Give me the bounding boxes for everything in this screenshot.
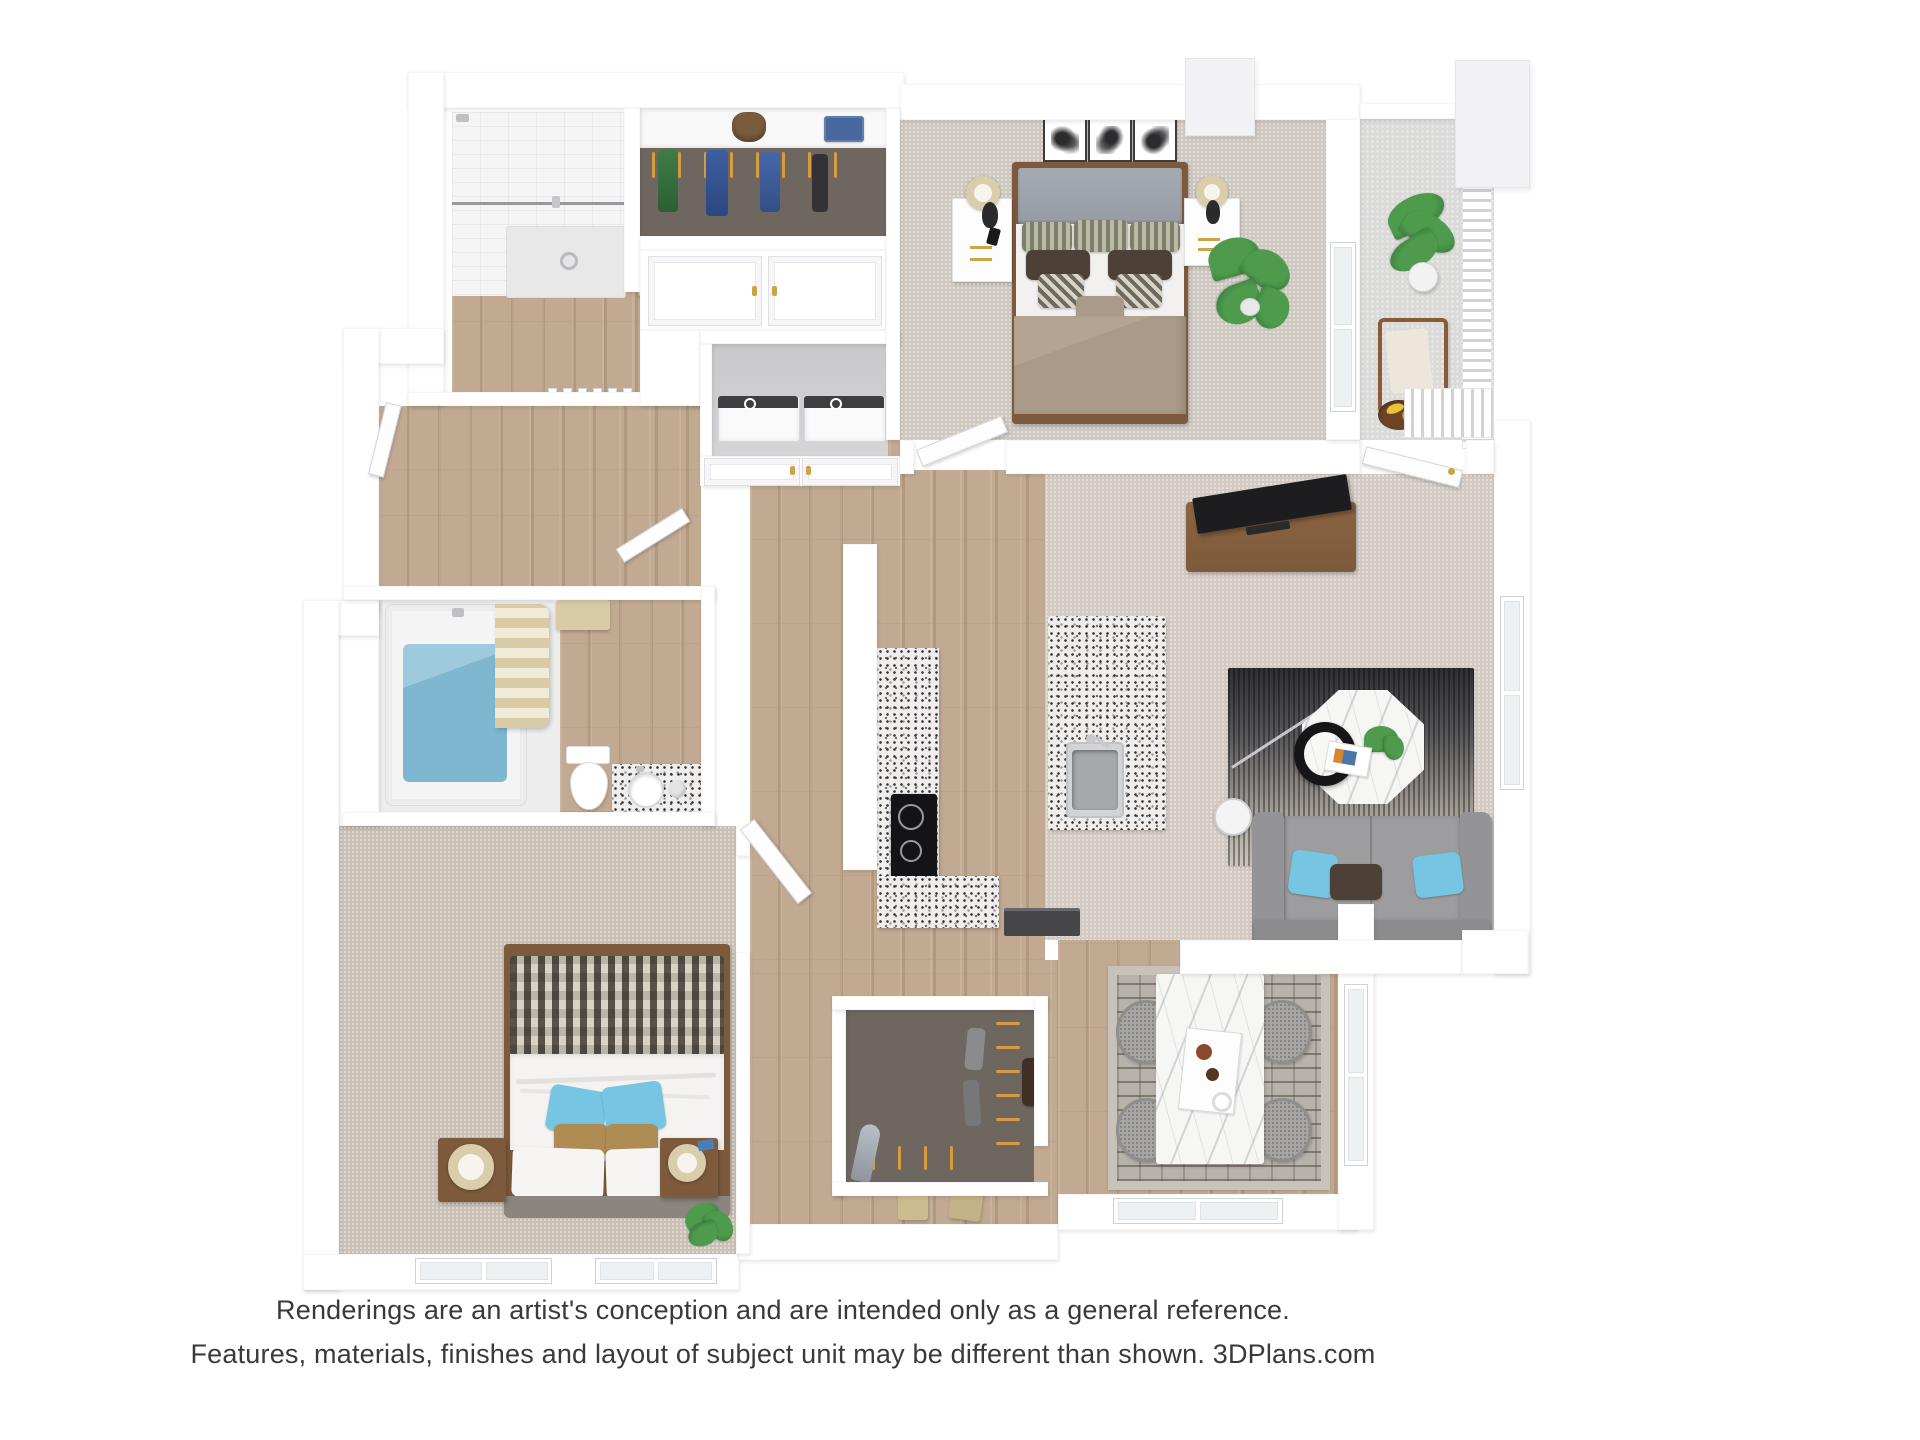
wall-master-west (886, 108, 900, 440)
closet2-hanger-4 (996, 1094, 1020, 1097)
closet1-door-panel-2 (768, 256, 882, 326)
shower1-drain-icon (560, 252, 578, 270)
wall-bath1-closet1-divider (624, 108, 640, 292)
master-foot-rail (1014, 414, 1186, 424)
patio-door-frame (1462, 930, 1528, 974)
window-living-east-pane-2 (1504, 695, 1520, 785)
island-sink-basin (1072, 750, 1118, 810)
bedroom2-lamp-left-icon (448, 1144, 494, 1190)
closet1-door-handle-2 (772, 286, 777, 296)
sofa-pillow-blue-right (1412, 851, 1465, 899)
monstera-pot (1240, 298, 1260, 316)
dining-cup-icon (1212, 1092, 1232, 1112)
dining-fruit-1 (1196, 1044, 1212, 1060)
nightstand-right-handle-1 (1198, 238, 1220, 241)
master-pillow-olive-2 (1074, 220, 1128, 252)
balcony-chair-seat (1385, 328, 1433, 394)
wall-closet2-north (832, 996, 1048, 1010)
wall-living-north-3 (1466, 440, 1494, 474)
hanging-garment-blue-2 (760, 152, 780, 212)
window-dining-south-pane-2 (1200, 1202, 1278, 1220)
bedroom2-duvet-chevron (510, 956, 724, 1054)
bathtub-water (403, 644, 507, 782)
hanger-rod-5 (756, 152, 759, 178)
closet2-clothes-gray-2 (962, 1079, 981, 1126)
entry-door-handle-icon (1448, 468, 1455, 475)
washer-control-panel (718, 396, 798, 408)
wall-art-frame-2 (1088, 118, 1132, 162)
window-bedroom2-south-1 (415, 1258, 552, 1284)
wall-closet2-south (832, 1182, 1048, 1196)
hanging-garment-blue-1 (706, 150, 728, 216)
window-master-east (1330, 242, 1356, 412)
laundry-door-panel-1 (704, 458, 800, 486)
wall-art-1 (1051, 126, 1079, 154)
master-headboard (1018, 168, 1182, 224)
window-dining-east-pane-2 (1348, 1077, 1364, 1161)
wall-closet2-east (1034, 996, 1048, 1146)
wall-bath2-east (701, 586, 715, 826)
laundry-door-handle-1 (790, 466, 795, 475)
floor-plan-3d (0, 0, 1920, 1440)
window-dining-east-pane-1 (1348, 989, 1364, 1073)
master-lamp-right-vase-icon (1206, 200, 1220, 224)
closet2-hanger-8 (898, 1146, 901, 1170)
hanger-rod-7 (808, 152, 811, 178)
hanging-garment-green (658, 150, 678, 212)
exterior-column-1 (1185, 58, 1255, 136)
closet2-hanger-3 (996, 1070, 1020, 1073)
wall-bath2-north (343, 586, 715, 600)
laundry-door-handle-2 (806, 466, 811, 475)
kitchen-counter-bottom (877, 876, 999, 928)
nightstand-left-handle-1 (970, 246, 992, 249)
cooktop-burner-2-icon (900, 840, 922, 862)
closet2-hanger-5 (996, 1118, 1020, 1121)
closet2-hanger-6 (996, 1142, 1020, 1145)
shower2-head-icon (452, 608, 464, 617)
wall-north-master (900, 84, 1360, 120)
wall-south-entry (739, 1224, 1058, 1260)
window-bedroom2-south-1-pane-1 (420, 1262, 482, 1280)
window-living-east (1500, 596, 1524, 790)
wall-art-2 (1096, 126, 1124, 154)
window-master-east-pane-2 (1334, 329, 1352, 407)
master-pillow-olive-3 (1130, 222, 1180, 252)
wall-laundry-west (700, 344, 712, 456)
master-pillow-olive-1 (1022, 222, 1072, 252)
window-bedroom2-south-2 (595, 1258, 717, 1284)
master-duvet (1014, 316, 1186, 420)
hanging-garment-dark (812, 154, 828, 212)
bedroom2-pillow-white-1 (511, 1146, 605, 1199)
laundry-door-panel-2 (802, 458, 898, 486)
shower1-handle-icon (552, 196, 560, 208)
balcony-plant-pot (1408, 262, 1438, 292)
bath2-faucet-icon (636, 766, 644, 772)
cooktop-burner-1-icon (898, 804, 924, 830)
disclaimer-line-1: Renderings are an artist's conception an… (0, 1288, 1566, 1332)
window-dining-south (1113, 1198, 1283, 1224)
wall-closet1-south (640, 236, 896, 250)
hanger-rod-6 (782, 152, 785, 178)
landing-railing (1404, 388, 1494, 438)
shower1-head-icon (456, 114, 469, 122)
dryer-dial-icon (830, 398, 842, 410)
folded-jeans-icon (824, 116, 864, 142)
shower1-glass-divider (452, 202, 624, 205)
bath2-soap-dome (668, 780, 686, 798)
closet2-hanger-10 (950, 1146, 953, 1170)
window-bedroom2-south-2-pane-2 (658, 1262, 712, 1280)
shower-curtain (495, 604, 549, 728)
wall-art-3 (1141, 126, 1169, 154)
towel-bath2 (556, 600, 610, 630)
hanger-rod-2 (678, 152, 681, 178)
closet2-hanger-9 (924, 1146, 927, 1170)
wall-art-frame-1 (1043, 118, 1087, 162)
wall-filler-closet1 (640, 330, 700, 406)
dryer-control-panel (804, 396, 884, 408)
dining-fruit-2 (1206, 1068, 1219, 1081)
window-bedroom2-south-1-pane-2 (486, 1262, 548, 1280)
wall-west-lower (303, 600, 339, 1290)
wall-laundry-north (700, 330, 900, 344)
hanger-rod-1 (652, 152, 655, 178)
wall-closet2-west (832, 996, 846, 1196)
window-dining-east (1344, 984, 1368, 1166)
window-living-east-pane-1 (1504, 601, 1520, 691)
closet2-hanger-1 (996, 1022, 1020, 1025)
wall-kitchen-west (843, 544, 877, 870)
wall-north-west-wing (408, 72, 904, 108)
closet1-door-panel-1 (648, 256, 762, 326)
wall-living-south (1180, 940, 1462, 974)
closet2-clothes-gray-1 (964, 1027, 986, 1070)
dishwasher (1004, 908, 1080, 936)
washer-dial-icon (744, 398, 756, 410)
window-bedroom2-south-2-pane-1 (600, 1262, 654, 1280)
disclaimer-text: Renderings are an artist's conception an… (0, 1288, 1566, 1376)
window-dining-south-pane-1 (1118, 1202, 1196, 1220)
closet2-hanger-2 (996, 1046, 1020, 1049)
nightstand-left-handle-2 (970, 258, 992, 261)
floor-lamp-base-icon (1214, 798, 1252, 836)
wall-bath2-south (343, 812, 715, 826)
exterior-column-2 (1455, 60, 1530, 188)
bath2-sink (628, 772, 664, 808)
window-master-east-pane-1 (1334, 247, 1352, 325)
wall-bedroom2-east-lower (736, 952, 750, 1254)
wall-living-north-2 (1006, 440, 1360, 474)
handbag-icon (732, 112, 766, 142)
wall-living-north-1 (900, 440, 914, 474)
coffee-table-plant-leaf2 (1384, 736, 1404, 760)
hanger-rod-4 (730, 152, 733, 178)
master-lamp-left-vase-icon (982, 202, 998, 228)
closet1-door-handle-1 (752, 286, 757, 296)
sofa-pillow-brown (1330, 864, 1382, 900)
hanger-rod-8 (834, 152, 837, 178)
wall-art-frame-3 (1133, 118, 1177, 162)
disclaimer-line-2: Features, materials, finishes and layout… (0, 1332, 1566, 1376)
